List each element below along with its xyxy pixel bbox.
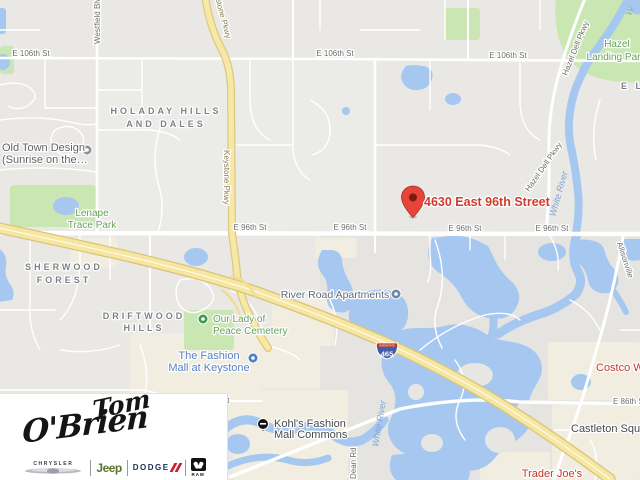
ram-head-icon [191,458,206,471]
poi-label-oldtown: (Sunrise on the… [2,154,88,166]
ram-logo: RAM [191,458,206,477]
park-label: Hazel [604,39,630,50]
street-label-keystone-mid: Keystone Pkwy [222,150,231,205]
ram-wordmark: RAM [191,472,204,477]
street-label-dean: Dean Rd [349,447,358,479]
neighborhood-label: SHERWOOD [25,262,103,272]
brand-divider [90,460,91,476]
park-label: Trace Park [68,220,118,231]
street-label: E 96th St [334,223,368,232]
park-label: Landing Park [587,52,640,63]
neighborhood-label: HILLS [124,323,165,333]
street-label-westfield: Westfield Blvd [93,0,102,44]
cemetery-label: Our Lady of [213,314,265,325]
street-label: E 106th St [12,49,50,58]
cemetery-label: Peace Cemetery [213,326,287,337]
street-label: E 106th St [316,49,354,58]
dealer-name-script-obrien: O'Brien [22,399,148,451]
neighborhood-label: AND DALES [126,119,206,129]
brand-divider [185,460,186,476]
chrysler-wings-icon [23,467,83,475]
poi-label-castleton: Castleton Square [571,423,640,435]
map-screenshot: E 106th St E 106th St E 106th St E 96th … [0,0,640,480]
poi-label-fashion-mall: Mall at Keystone [168,362,249,374]
dealer-logo-box: Tom O'Brien CHRYSLER Jeep DODGE [0,393,228,480]
poi-label-fashion-mall: The Fashion [178,350,239,362]
street-label: E 96th St [449,224,483,233]
shield-number: 465 [381,350,394,359]
poi-label-kohls: Mall Commons [274,429,348,441]
park-label: Lenape [75,208,109,219]
street-label: E 96th St [536,224,570,233]
brand-divider [127,460,128,476]
brand-logo-row: CHRYSLER Jeep DODGE [0,458,227,477]
chrysler-logo: CHRYSLER [21,461,85,475]
poi-label-river-road-apartments: River Road Apartments [281,289,390,301]
street-label: E 86th St [613,397,640,406]
neighborhood-label-partial: E L [621,81,640,91]
dodge-wordmark: DODGE [133,463,170,472]
e-96th-st-road [0,233,640,234]
street-label: E 106th St [489,51,527,60]
neighborhood-label: DRIFTWOOD [103,311,186,321]
dodge-logo: DODGE [133,463,180,472]
street-label: E 96th St [234,223,268,232]
destination-label: 4630 East 96th Street [424,195,551,209]
jeep-wordmark: Jeep [96,461,121,475]
poi-label-costco: Costco Wholesale [596,362,640,374]
neighborhood-label: FOREST [37,275,92,285]
shield-interstate-text: INTERSTATE [379,344,395,348]
poi-label-oldtown: Old Town Design [2,142,85,154]
neighborhood-label: HOLADAY HILLS [110,106,221,116]
poi-label-trader-joes: Trader Joe's [522,468,583,480]
